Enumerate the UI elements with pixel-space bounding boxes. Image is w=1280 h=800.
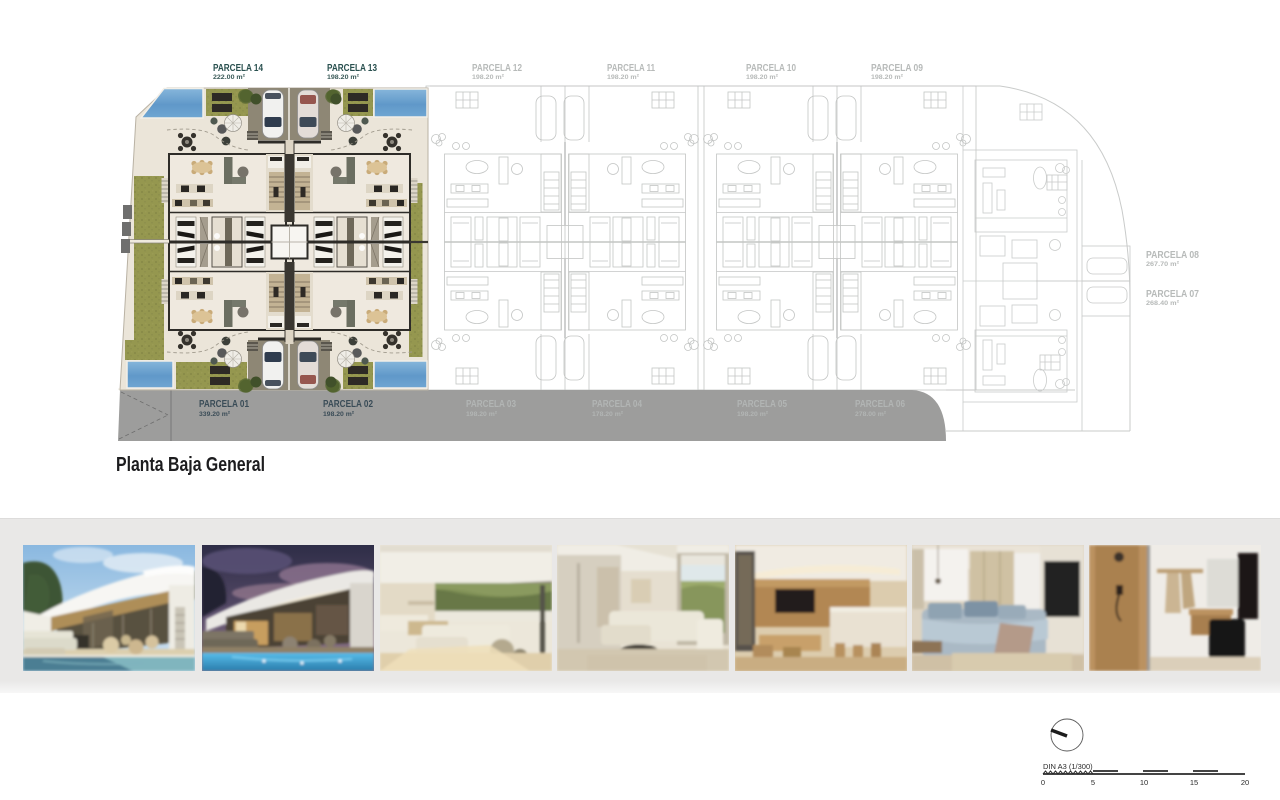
svg-text:5: 5 bbox=[1091, 778, 1095, 787]
svg-text:178.20 m²: 178.20 m² bbox=[592, 411, 624, 418]
svg-text:15: 15 bbox=[1190, 778, 1198, 787]
svg-text:PARCELA 12: PARCELA 12 bbox=[472, 63, 522, 74]
svg-text:10: 10 bbox=[1140, 778, 1148, 787]
svg-text:198.20 m²: 198.20 m² bbox=[871, 74, 904, 81]
svg-text:PARCELA 05: PARCELA 05 bbox=[737, 399, 787, 410]
svg-text:198.20 m²: 198.20 m² bbox=[472, 74, 505, 81]
svg-text:PARCELA 07: PARCELA 07 bbox=[1146, 289, 1199, 300]
svg-text:278.00 m²: 278.00 m² bbox=[855, 411, 887, 418]
svg-text:PARCELA 02: PARCELA 02 bbox=[323, 399, 373, 410]
svg-text:PARCELA 10: PARCELA 10 bbox=[746, 63, 796, 74]
svg-text:PARCELA 11: PARCELA 11 bbox=[607, 63, 655, 74]
svg-text:PARCELA 14: PARCELA 14 bbox=[213, 63, 263, 74]
svg-text:198.20 m²: 198.20 m² bbox=[607, 74, 640, 81]
svg-text:20: 20 bbox=[1241, 778, 1249, 787]
svg-text:PARCELA 03: PARCELA 03 bbox=[466, 399, 516, 410]
svg-text:198.20 m²: 198.20 m² bbox=[746, 74, 779, 81]
svg-text:PARCELA 08: PARCELA 08 bbox=[1146, 250, 1199, 261]
svg-text:198.20 m²: 198.20 m² bbox=[327, 74, 360, 81]
svg-text:PARCELA 06: PARCELA 06 bbox=[855, 399, 905, 410]
svg-text:PARCELA 04: PARCELA 04 bbox=[592, 399, 642, 410]
svg-text:0: 0 bbox=[1041, 778, 1045, 787]
svg-text:PARCELA 09: PARCELA 09 bbox=[871, 63, 923, 74]
svg-text:198.20 m²: 198.20 m² bbox=[737, 411, 769, 418]
svg-text:198.20 m²: 198.20 m² bbox=[466, 411, 498, 418]
svg-text:PARCELA 13: PARCELA 13 bbox=[327, 63, 377, 74]
svg-text:268.40 m²: 268.40 m² bbox=[1146, 300, 1180, 307]
svg-text:Planta Baja General: Planta Baja General bbox=[116, 453, 265, 476]
svg-text:339.20 m²: 339.20 m² bbox=[199, 411, 231, 418]
svg-text:DIN A3 (1/300): DIN A3 (1/300) bbox=[1043, 762, 1093, 771]
svg-text:PARCELA 01: PARCELA 01 bbox=[199, 399, 249, 410]
svg-text:267.70 m²: 267.70 m² bbox=[1146, 261, 1180, 268]
svg-text:222.00 m²: 222.00 m² bbox=[213, 74, 246, 81]
svg-text:198.20 m²: 198.20 m² bbox=[323, 411, 355, 418]
